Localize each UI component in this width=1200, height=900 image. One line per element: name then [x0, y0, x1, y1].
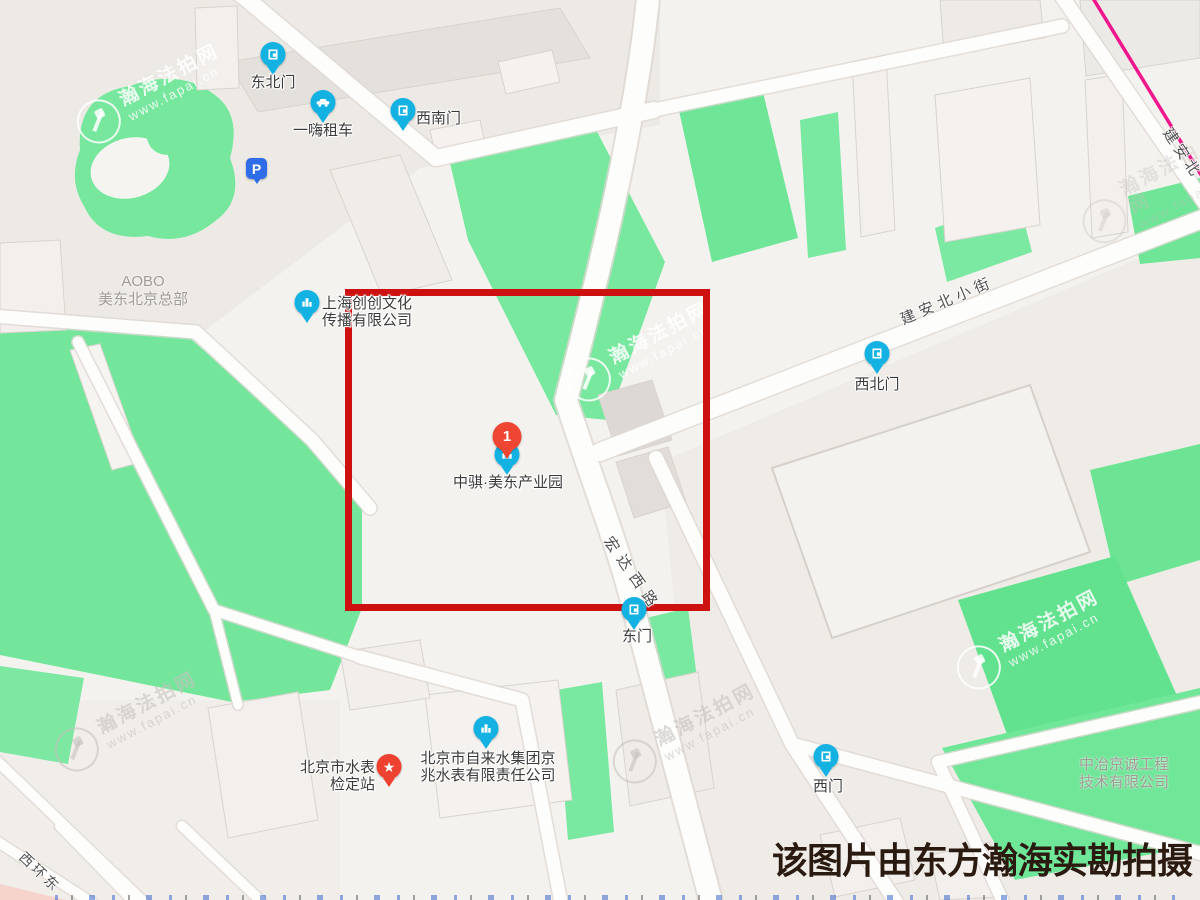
poi-label-shuibiao: 北京市水表 检定站: [300, 759, 375, 793]
gate-icon: [820, 750, 833, 763]
gate-icon: [871, 347, 884, 360]
highlight-rectangle: [345, 289, 710, 611]
clipped-text-strip: [55, 895, 1175, 900]
gate-icon: [628, 603, 641, 616]
poi-label-dongmen: 东门: [622, 628, 652, 645]
poi-label-shanghai-chuangchuang: 上海创创文化 传播有限公司: [322, 295, 412, 329]
poi-label-ximen: 西门: [813, 778, 843, 795]
gate-icon: [267, 48, 280, 61]
photo-caption: 该图片由东方瀚海实勘拍摄: [772, 832, 1192, 884]
poi-label-xibeimen: 西北门: [854, 376, 899, 393]
area-label-aobo: AOBO 美东北京总部: [98, 273, 188, 309]
poi-label-zhongqi: 中骐·美东产业园: [453, 474, 563, 491]
car-icon: [316, 97, 331, 108]
area-label-zhongye: 中冶京诚工程 技术有限公司: [1079, 756, 1169, 792]
poi-label-dongbeimen: 东北门: [250, 74, 295, 91]
map-screenshot[interactable]: 瀚海法拍网www.fapai.cn 瀚海法拍网www.fapai.cn 瀚海法拍…: [0, 0, 1200, 900]
parking-icon[interactable]: P: [246, 158, 267, 179]
star-icon: ★: [383, 760, 396, 774]
poi-label-yihai: 一嗨租车: [293, 122, 353, 139]
gate-icon: [397, 104, 410, 117]
poi-label-xinanmen: 西南门: [416, 110, 461, 127]
building-icon: [480, 722, 493, 735]
building-icon: [301, 296, 314, 309]
poi-label-zilaishui: 北京市自来水集团京 兆水表有限责任公司: [420, 750, 555, 784]
